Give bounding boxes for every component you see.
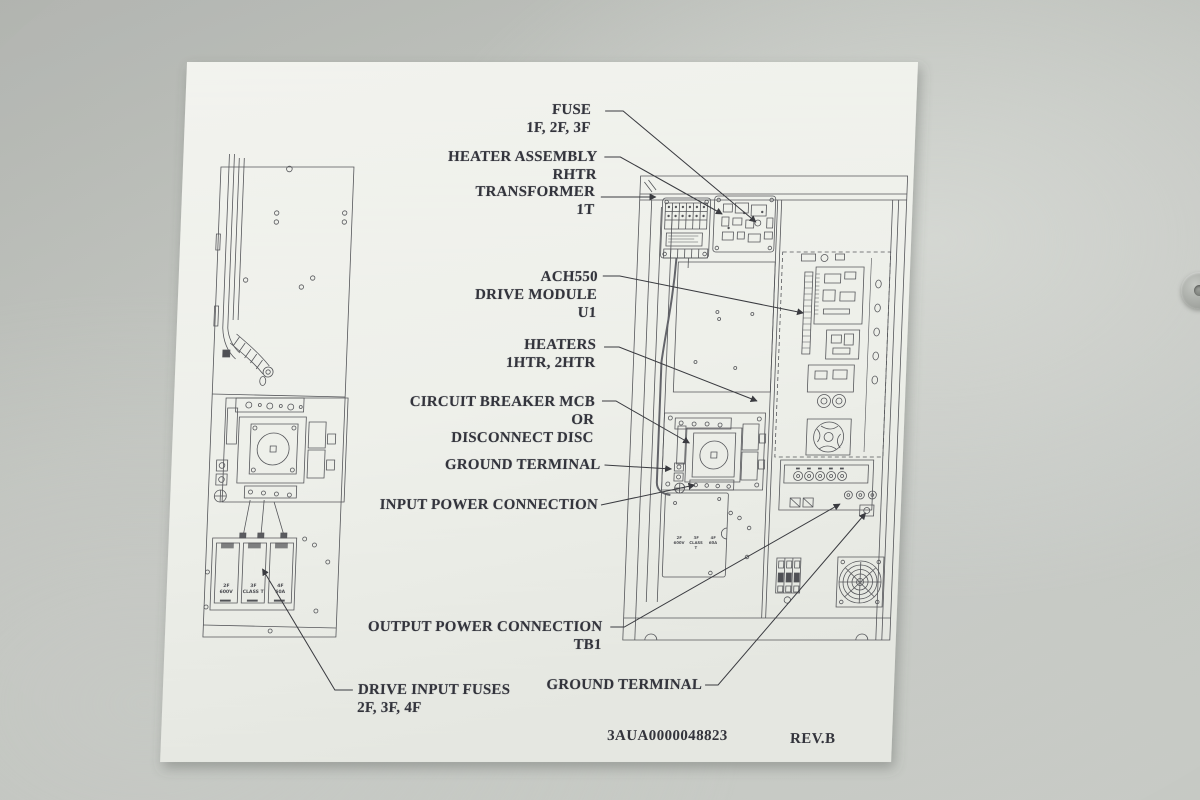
photo-of-drive-cabinet-diagram: FUSE 1F, 2F, 3F HEATER ASSEMBLY RHTR TRA… [0, 0, 1200, 800]
paper-sheet [160, 62, 918, 762]
knob-hole [1194, 285, 1200, 296]
diagram-drawing [0, 0, 1200, 800]
